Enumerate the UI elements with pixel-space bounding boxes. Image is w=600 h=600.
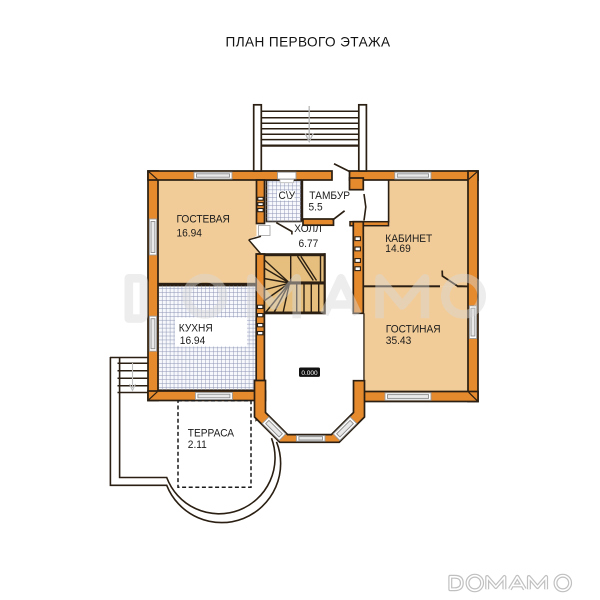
- svg-text:2.11: 2.11: [188, 438, 207, 451]
- svg-text:14.69: 14.69: [385, 243, 410, 256]
- svg-text:5.5: 5.5: [309, 201, 323, 214]
- svg-text:ГОСТИНАЯ: ГОСТИНАЯ: [386, 323, 441, 336]
- svg-text:КУХНЯ: КУХНЯ: [179, 322, 213, 335]
- svg-text:С\У: С\У: [279, 190, 296, 203]
- svg-text:ГОСТЕВАЯ: ГОСТЕВАЯ: [177, 213, 230, 226]
- svg-text:0.000: 0.000: [301, 370, 318, 377]
- svg-text:ХОЛЛ: ХОЛЛ: [294, 223, 322, 236]
- svg-text:6.77: 6.77: [299, 238, 319, 251]
- svg-text:ПЛАН ПЕРВОГО ЭТАЖА: ПЛАН ПЕРВОГО ЭТАЖА: [226, 35, 391, 50]
- svg-text:35.43: 35.43: [386, 335, 411, 348]
- svg-text:16.94: 16.94: [180, 335, 205, 348]
- svg-text:16.94: 16.94: [177, 227, 202, 240]
